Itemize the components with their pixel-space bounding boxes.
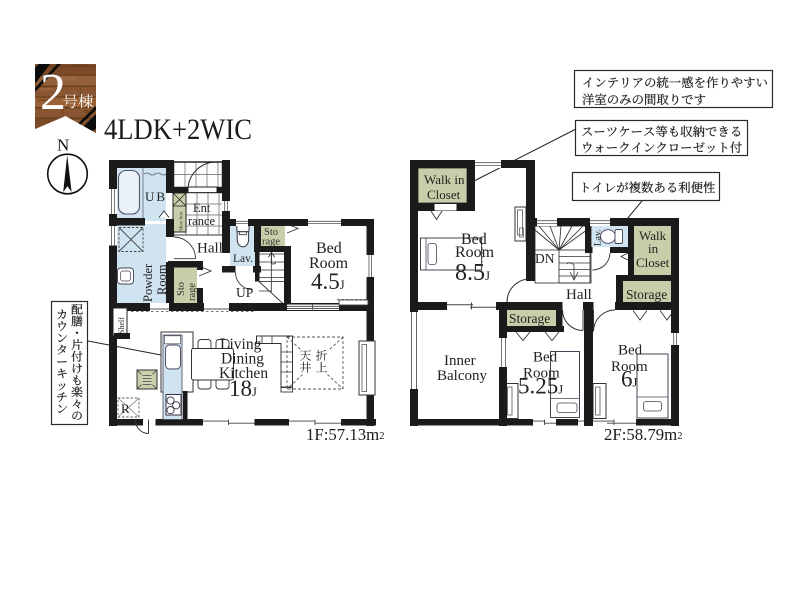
svg-text:Storage: Storage — [626, 287, 667, 302]
svg-text:Balcony: Balcony — [437, 368, 487, 384]
svg-text:rage: rage — [187, 283, 198, 301]
svg-text:Powder: Powder — [141, 263, 155, 302]
svg-text:Shoe box: Shoe box — [179, 211, 185, 231]
svg-text:4.5J: 4.5J — [311, 269, 345, 294]
svg-text:Shelf: Shelf — [117, 317, 126, 334]
svg-text:DN: DN — [535, 251, 555, 266]
svg-text:2: 2 — [40, 64, 66, 121]
svg-text:N: N — [57, 136, 69, 155]
svg-text:Lav.: Lav. — [233, 253, 253, 265]
svg-text:Inner: Inner — [444, 353, 476, 369]
svg-text:Bed: Bed — [533, 350, 558, 366]
svg-text:rage: rage — [262, 237, 280, 248]
svg-text:Storage: Storage — [509, 311, 550, 326]
svg-text:Walk in: Walk in — [424, 172, 465, 187]
svg-text:in: in — [648, 241, 659, 256]
svg-text:R: R — [121, 401, 130, 416]
svg-text:Closet: Closet — [427, 187, 461, 202]
svg-text:5.25J: 5.25J — [518, 374, 563, 399]
svg-text:1F:57.13m2: 1F:57.13m2 — [306, 425, 384, 444]
svg-text:Bed: Bed — [618, 343, 643, 359]
svg-text:UB: UB — [145, 189, 167, 204]
svg-text:Hall: Hall — [566, 287, 592, 303]
svg-text:8.5J: 8.5J — [455, 260, 490, 286]
svg-text:Hall: Hall — [197, 241, 223, 257]
svg-text:Sto: Sto — [176, 282, 187, 296]
svg-text:Closet: Closet — [636, 255, 670, 270]
svg-text:Room: Room — [455, 244, 495, 261]
svg-text:UP: UP — [236, 285, 253, 300]
svg-text:2F:58.79m2: 2F:58.79m2 — [604, 425, 682, 444]
svg-text:Ent: Ent — [193, 201, 211, 215]
svg-text:Lav.: Lav. — [594, 229, 604, 246]
svg-text:4LDK+2WIC: 4LDK+2WIC — [104, 113, 252, 146]
svg-text:rance: rance — [188, 214, 216, 228]
